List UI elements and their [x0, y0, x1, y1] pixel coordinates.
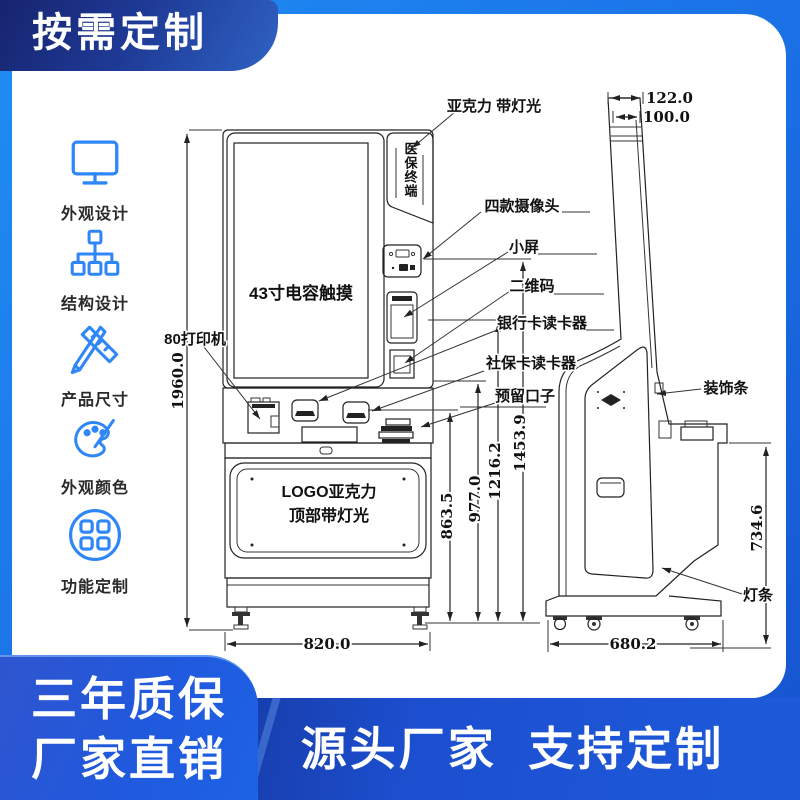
small-screen-label: 小屏 — [509, 239, 539, 256]
logo-label-line1: LOGO亚克力 — [281, 482, 376, 501]
door-handle — [597, 478, 624, 497]
side-base — [546, 596, 721, 630]
warranty-line2: 厂家直销 — [0, 729, 258, 789]
second-card-slot — [343, 402, 369, 423]
receipt-printer — [248, 398, 279, 433]
warranty-line1: 三年质保 — [0, 669, 258, 729]
small-screen — [387, 292, 417, 343]
warranty-badge: 三年质保 厂家直销 — [0, 655, 258, 800]
printer-label: 80打印机 — [164, 330, 226, 348]
acrylic-label: 亚克力 带灯光 — [447, 97, 541, 115]
dim-depth: 680.2 — [610, 635, 657, 653]
sign-vertical-text: 医保终端 — [403, 142, 419, 198]
social-reader-label: 社保卡读卡器 — [485, 354, 577, 372]
light-strip-label: 灯条 — [743, 586, 774, 604]
diamond-decal — [601, 394, 621, 406]
front-base — [227, 578, 429, 629]
dim-h-mid: 977.0 — [466, 476, 484, 523]
top-banner-text: 按需定制 — [32, 11, 208, 55]
bottom-bar-text: 源头厂家 支持定制 — [235, 698, 790, 800]
lock-slot — [320, 447, 332, 454]
acrylic-sign-panel: 医保终端 — [387, 133, 433, 223]
bank-reader-label: 银行卡读卡器 — [497, 314, 588, 332]
qr-label: 二维码 — [509, 277, 554, 295]
right-foot — [411, 607, 429, 629]
reserved-opening — [302, 427, 357, 442]
caster — [586, 616, 602, 630]
logo-label-line2: 顶部带灯光 — [289, 506, 369, 525]
callout-labels: 亚克力 带灯光 四款摄像头 小屏 二维码 银行卡读卡器 社保卡读卡器 预留口子 … — [164, 97, 774, 604]
dim-total-height: 1960.0 — [169, 352, 187, 409]
front-view: 43寸电容触摸 医保终端 — [223, 130, 433, 629]
bank-card-slot — [292, 400, 318, 421]
dim-h-screen: 1453.9 — [511, 414, 529, 471]
social-card-reader — [379, 419, 413, 443]
decor-strip-label: 装饰条 — [702, 379, 749, 397]
cameras-label: 四款摄像头 — [484, 197, 559, 215]
qr-scanner — [390, 350, 414, 378]
dim-side-back: 734.6 — [748, 505, 766, 552]
dim-h-social: 863.5 — [438, 493, 456, 540]
touch-screen-label: 43寸电容触摸 — [249, 283, 353, 303]
dim-pole-outer: 122.0 — [646, 89, 693, 107]
caster — [684, 616, 700, 630]
dim-front-width: 820.0 — [304, 635, 351, 653]
logo-acrylic-panel: LOGO亚克力 顶部带灯光 — [230, 463, 426, 558]
side-door-panel — [585, 347, 653, 578]
reserved-label: 预留口子 — [495, 387, 555, 405]
touch-screen — [227, 133, 384, 387]
dimension-lines: 1960.0 820.0 863.5 977.0 1216.2 1453.9 1… — [169, 89, 771, 653]
caster — [553, 616, 567, 630]
dim-h-qr: 1216.2 — [486, 442, 504, 499]
camera-panel — [383, 245, 421, 277]
left-foot — [232, 607, 250, 629]
dim-pole-inner: 100.0 — [643, 108, 690, 126]
top-banner: 按需定制 — [0, 0, 278, 71]
